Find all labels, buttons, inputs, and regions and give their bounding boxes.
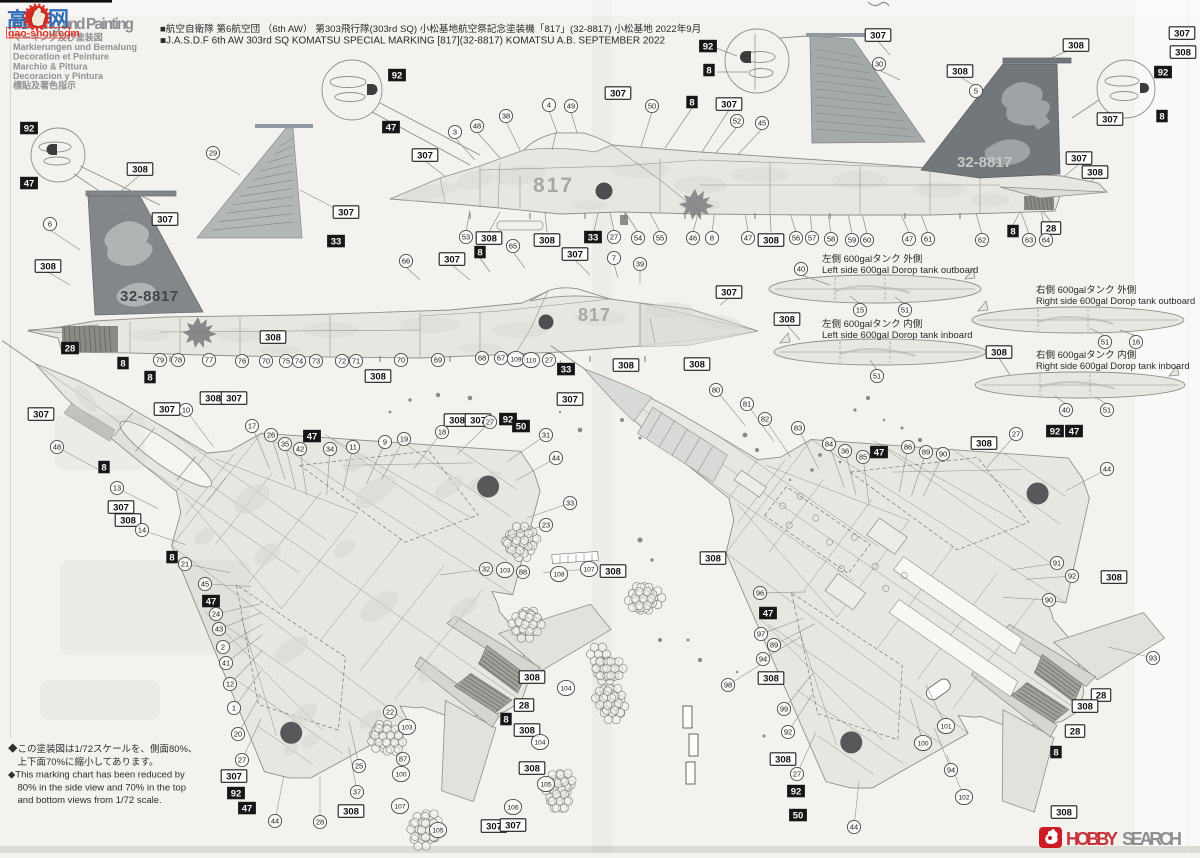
svg-text:308: 308 xyxy=(449,415,465,426)
svg-text:307: 307 xyxy=(157,214,173,225)
svg-text:92: 92 xyxy=(1158,68,1169,79)
svg-text:50: 50 xyxy=(793,811,804,822)
svg-text:307: 307 xyxy=(159,404,175,415)
svg-text:32: 32 xyxy=(482,565,490,574)
svg-text:64: 64 xyxy=(1042,236,1050,245)
svg-text:58: 58 xyxy=(827,235,835,244)
svg-text:307: 307 xyxy=(226,393,242,404)
svg-text:10: 10 xyxy=(182,406,190,415)
svg-text:308: 308 xyxy=(524,763,540,774)
svg-text:83: 83 xyxy=(794,424,802,433)
svg-text:66: 66 xyxy=(402,257,410,266)
svg-text:92: 92 xyxy=(392,71,403,82)
svg-text:47: 47 xyxy=(763,609,774,620)
svg-text:■J.A.S.D.F 6th AW 303rd SQ KOM: ■J.A.S.D.F 6th AW 303rd SQ KOMATSU SPECI… xyxy=(160,36,666,47)
svg-text:84: 84 xyxy=(825,440,833,449)
svg-text:308: 308 xyxy=(1106,572,1122,583)
svg-text:307: 307 xyxy=(486,821,502,832)
svg-text:102: 102 xyxy=(958,795,969,802)
svg-text:70: 70 xyxy=(262,357,270,366)
svg-text:52: 52 xyxy=(733,117,741,126)
svg-text:◆この塗装図は1/72スケールを、側面80%、: ◆この塗装図は1/72スケールを、側面80%、 xyxy=(8,743,198,755)
svg-text:55: 55 xyxy=(656,234,664,243)
svg-text:308: 308 xyxy=(779,314,795,325)
svg-text:8: 8 xyxy=(147,373,152,384)
svg-text:24: 24 xyxy=(212,610,220,619)
svg-text:56: 56 xyxy=(792,234,800,243)
svg-text:81: 81 xyxy=(743,400,751,409)
svg-text:Marchio & Pittura: Marchio & Pittura xyxy=(13,61,89,71)
svg-text:19: 19 xyxy=(400,435,408,444)
svg-text:44: 44 xyxy=(271,817,279,826)
svg-text:92: 92 xyxy=(784,728,792,737)
svg-text:89: 89 xyxy=(922,448,930,457)
svg-text:25: 25 xyxy=(355,762,363,771)
svg-text:42: 42 xyxy=(296,445,304,454)
svg-text:308: 308 xyxy=(763,235,779,246)
svg-text:82: 82 xyxy=(761,415,769,424)
svg-text:27: 27 xyxy=(545,356,553,365)
svg-text:308: 308 xyxy=(370,371,386,382)
svg-text:右側 600galタンク 内側: 右側 600galタンク 内側 xyxy=(1036,349,1136,361)
svg-text:308: 308 xyxy=(132,164,148,175)
svg-text:35: 35 xyxy=(281,440,289,449)
svg-text:103: 103 xyxy=(499,568,510,575)
svg-text:308: 308 xyxy=(952,66,968,77)
svg-text:67: 67 xyxy=(497,354,505,363)
svg-text:307: 307 xyxy=(721,99,737,110)
svg-text:and bottom views from 1/72 sca: and bottom views from 1/72 scale. xyxy=(8,795,162,806)
svg-text:8: 8 xyxy=(689,98,694,109)
svg-text:45: 45 xyxy=(201,580,209,589)
svg-text:44: 44 xyxy=(1103,465,1111,474)
svg-text:307: 307 xyxy=(1102,114,1118,125)
svg-text:33: 33 xyxy=(331,237,342,248)
svg-text:27: 27 xyxy=(610,233,618,242)
svg-text:59: 59 xyxy=(848,236,856,245)
svg-text:90: 90 xyxy=(1045,596,1053,605)
svg-text:104: 104 xyxy=(560,686,571,693)
svg-text:23: 23 xyxy=(542,521,550,530)
svg-text:104: 104 xyxy=(534,740,545,747)
svg-text:48: 48 xyxy=(473,122,481,131)
svg-text:SEARCH: SEARCH xyxy=(1122,829,1182,849)
svg-text:57: 57 xyxy=(808,234,816,243)
svg-text:8: 8 xyxy=(1159,112,1164,123)
svg-text:47: 47 xyxy=(744,234,752,243)
svg-text:92: 92 xyxy=(24,124,35,135)
svg-text:15: 15 xyxy=(856,306,864,315)
svg-text:72: 72 xyxy=(338,357,346,366)
svg-text:307: 307 xyxy=(113,502,129,513)
svg-text:2: 2 xyxy=(221,643,225,652)
svg-text:817: 817 xyxy=(578,305,611,325)
svg-text:28: 28 xyxy=(1046,223,1057,234)
svg-text:307: 307 xyxy=(1071,153,1087,164)
svg-text:Markierungen und Bemalung: Markierungen und Bemalung xyxy=(13,42,137,52)
svg-text:307: 307 xyxy=(505,820,521,831)
svg-text:308: 308 xyxy=(1068,40,1084,51)
svg-text:50: 50 xyxy=(516,422,527,433)
svg-text:107: 107 xyxy=(583,567,594,574)
svg-text:100: 100 xyxy=(395,772,406,779)
svg-text:78: 78 xyxy=(174,356,182,365)
svg-text:307: 307 xyxy=(417,150,433,161)
svg-text:308: 308 xyxy=(775,754,791,765)
svg-text:左側 600galタンク 外側: 左側 600galタンク 外側 xyxy=(822,253,922,265)
svg-text:28: 28 xyxy=(316,818,324,827)
svg-text:9: 9 xyxy=(383,438,387,447)
svg-text:13: 13 xyxy=(113,484,121,493)
svg-text:307: 307 xyxy=(33,409,49,420)
svg-text:308: 308 xyxy=(1175,47,1191,58)
svg-text:308: 308 xyxy=(976,438,992,449)
svg-text:307: 307 xyxy=(1174,28,1190,39)
svg-text:28: 28 xyxy=(65,344,76,355)
svg-text:50: 50 xyxy=(648,102,656,111)
svg-text:96: 96 xyxy=(756,589,764,598)
svg-text:103: 103 xyxy=(401,725,412,732)
svg-text:61: 61 xyxy=(924,235,932,244)
svg-text:48: 48 xyxy=(53,443,61,452)
svg-text:29: 29 xyxy=(209,149,217,158)
svg-text:307: 307 xyxy=(226,771,242,782)
svg-text:308: 308 xyxy=(1056,807,1072,818)
svg-text:11: 11 xyxy=(349,443,357,452)
svg-text:14: 14 xyxy=(138,526,146,535)
svg-text:106: 106 xyxy=(507,805,518,812)
svg-text:31: 31 xyxy=(542,431,550,440)
svg-text:307: 307 xyxy=(567,249,583,260)
svg-text:8: 8 xyxy=(503,715,508,726)
svg-text:110: 110 xyxy=(526,358,537,365)
svg-text:92: 92 xyxy=(231,789,242,800)
svg-text:307: 307 xyxy=(870,30,886,41)
svg-text:74: 74 xyxy=(295,357,303,366)
svg-text:47: 47 xyxy=(905,235,913,244)
svg-text:49: 49 xyxy=(567,102,575,111)
svg-text:27: 27 xyxy=(486,418,494,427)
svg-text:34: 34 xyxy=(326,445,334,454)
svg-text:307: 307 xyxy=(338,207,354,218)
svg-text:92: 92 xyxy=(1050,427,1061,438)
svg-text:17: 17 xyxy=(248,422,256,431)
svg-text:20: 20 xyxy=(234,730,242,739)
svg-text:88: 88 xyxy=(519,568,527,577)
svg-text:右側 600galタンク 外側: 右側 600galタンク 外側 xyxy=(1036,284,1136,296)
svg-text:86: 86 xyxy=(904,443,912,452)
svg-text:75: 75 xyxy=(282,357,290,366)
svg-text:Left side 600gal Dorop tank ou: Left side 600gal Dorop tank outboard xyxy=(822,265,978,276)
svg-text:47: 47 xyxy=(386,123,397,134)
svg-text:47: 47 xyxy=(242,804,253,815)
svg-text:308: 308 xyxy=(120,515,136,526)
svg-text:Right side 600gal Dorop tank i: Right side 600gal Dorop tank inboard xyxy=(1036,361,1190,371)
svg-text:30: 30 xyxy=(875,60,883,69)
svg-text:97: 97 xyxy=(757,630,765,639)
svg-text:40: 40 xyxy=(1062,406,1070,415)
svg-text:92: 92 xyxy=(1068,572,1076,581)
svg-text:◆This marking chart has been r: ◆This marking chart has been reduced by xyxy=(8,770,185,781)
svg-text:41: 41 xyxy=(222,659,230,668)
svg-text:39: 39 xyxy=(636,260,644,269)
svg-text:32-8817: 32-8817 xyxy=(120,288,179,305)
svg-text:308: 308 xyxy=(519,725,535,736)
svg-text:47: 47 xyxy=(307,432,318,443)
svg-text:47: 47 xyxy=(1069,427,1080,438)
svg-text:7: 7 xyxy=(612,254,616,263)
svg-text:308: 308 xyxy=(343,806,359,817)
svg-text:27: 27 xyxy=(1012,430,1020,439)
svg-text:51: 51 xyxy=(1103,406,1111,415)
svg-text:87: 87 xyxy=(399,755,407,764)
svg-text:47: 47 xyxy=(206,597,217,608)
svg-text:51: 51 xyxy=(901,306,909,315)
svg-text:53: 53 xyxy=(462,233,470,242)
svg-text:8: 8 xyxy=(710,234,714,243)
svg-text:308: 308 xyxy=(605,566,621,577)
svg-text:94: 94 xyxy=(759,655,767,664)
svg-text:85: 85 xyxy=(859,453,867,462)
svg-text:68: 68 xyxy=(478,354,486,363)
svg-text:51: 51 xyxy=(1101,338,1109,347)
svg-text:307: 307 xyxy=(610,88,626,99)
svg-text:80: 80 xyxy=(712,386,720,395)
svg-text:37: 37 xyxy=(353,788,361,797)
svg-text:33: 33 xyxy=(588,233,599,244)
svg-text:308: 308 xyxy=(763,673,779,684)
svg-text:54: 54 xyxy=(634,234,642,243)
svg-text:307: 307 xyxy=(444,254,460,265)
svg-text:79: 79 xyxy=(156,356,164,365)
svg-text:5: 5 xyxy=(974,87,978,96)
svg-text:92: 92 xyxy=(703,42,714,53)
svg-text:22: 22 xyxy=(386,708,394,717)
svg-text:98: 98 xyxy=(724,681,732,690)
svg-text:101: 101 xyxy=(940,724,951,731)
svg-text:94: 94 xyxy=(947,766,955,775)
svg-text:71: 71 xyxy=(352,357,360,366)
svg-text:109: 109 xyxy=(510,357,521,364)
svg-text:107: 107 xyxy=(394,804,405,811)
svg-text:308: 308 xyxy=(265,332,281,343)
svg-text:47: 47 xyxy=(874,448,885,459)
svg-text:308: 308 xyxy=(524,672,540,683)
svg-text:308: 308 xyxy=(618,360,634,371)
svg-text:40: 40 xyxy=(797,265,805,274)
svg-text:93: 93 xyxy=(1149,654,1157,663)
svg-text:18: 18 xyxy=(438,428,446,437)
svg-text:8: 8 xyxy=(706,66,711,77)
svg-text:21: 21 xyxy=(181,560,189,569)
svg-text:308: 308 xyxy=(205,393,221,404)
svg-text:307: 307 xyxy=(721,287,737,298)
svg-text:60: 60 xyxy=(863,236,871,245)
svg-text:89: 89 xyxy=(770,641,778,650)
svg-text:46: 46 xyxy=(689,234,697,243)
svg-text:47: 47 xyxy=(24,179,35,190)
svg-text:308: 308 xyxy=(481,233,497,244)
svg-text:69: 69 xyxy=(434,356,442,365)
svg-text:左側 600galタンク 内側: 左側 600galタンク 内側 xyxy=(822,318,922,330)
svg-text:38: 38 xyxy=(502,112,510,121)
svg-text:92: 92 xyxy=(503,415,514,426)
svg-text:8: 8 xyxy=(169,553,174,564)
svg-text:308: 308 xyxy=(991,347,1007,358)
svg-text:308: 308 xyxy=(705,553,721,564)
svg-text:307: 307 xyxy=(562,394,578,405)
svg-text:91: 91 xyxy=(1053,559,1061,568)
svg-text:99: 99 xyxy=(780,705,788,714)
svg-text:標貼及著色指示: 標貼及著色指示 xyxy=(13,80,76,91)
svg-text:28: 28 xyxy=(519,700,530,711)
svg-text:27: 27 xyxy=(793,770,801,779)
svg-text:Decoracion y Pintura: Decoracion y Pintura xyxy=(13,71,104,81)
svg-text:1: 1 xyxy=(232,704,236,713)
svg-text:51: 51 xyxy=(873,372,881,381)
svg-text:80% in the side view and 70% i: 80% in the side view and 70% in the top xyxy=(8,782,186,793)
svg-text:4: 4 xyxy=(547,101,551,110)
svg-text:3: 3 xyxy=(453,128,457,137)
svg-text:HOBBY: HOBBY xyxy=(1066,829,1118,849)
svg-text:100: 100 xyxy=(917,741,928,748)
svg-text:308: 308 xyxy=(1087,167,1103,178)
svg-text:90: 90 xyxy=(939,450,947,459)
svg-text:105: 105 xyxy=(432,828,443,835)
svg-text:76: 76 xyxy=(238,357,246,366)
svg-text:77: 77 xyxy=(205,356,213,365)
svg-text:92: 92 xyxy=(791,787,802,798)
svg-text:43: 43 xyxy=(215,625,223,634)
svg-text:12: 12 xyxy=(226,680,234,689)
svg-text:73: 73 xyxy=(312,357,320,366)
svg-text:8: 8 xyxy=(477,248,482,259)
svg-text:Left side 600gal Dorop tank in: Left side 600gal Dorop tank inboard xyxy=(822,330,973,341)
svg-text:36: 36 xyxy=(841,447,849,456)
svg-text:63: 63 xyxy=(1025,236,1033,245)
svg-text:308: 308 xyxy=(1077,701,1093,712)
svg-text:70: 70 xyxy=(397,356,405,365)
svg-text:8: 8 xyxy=(1010,227,1015,238)
svg-text:308: 308 xyxy=(689,359,705,370)
svg-text:26: 26 xyxy=(267,431,275,440)
svg-text:6: 6 xyxy=(48,220,52,229)
svg-text:Right side 600gal Dorop tank o: Right side 600gal Dorop tank outboard xyxy=(1036,296,1195,306)
svg-text:817: 817 xyxy=(533,174,574,197)
svg-text:32-8817: 32-8817 xyxy=(957,154,1012,171)
svg-text:108: 108 xyxy=(553,572,564,579)
svg-text:33: 33 xyxy=(566,499,574,508)
svg-text:8: 8 xyxy=(1053,748,1058,759)
svg-text:105: 105 xyxy=(540,782,551,789)
svg-text:33: 33 xyxy=(561,365,572,376)
svg-text:44: 44 xyxy=(850,823,858,832)
svg-text:308: 308 xyxy=(539,235,555,246)
svg-text:308: 308 xyxy=(40,261,56,272)
svg-text:62: 62 xyxy=(978,236,986,245)
svg-text:■航空自衛隊 第6航空団 （6th AW） 第303飛行隊(: ■航空自衛隊 第6航空団 （6th AW） 第303飛行隊(303rd SQ) … xyxy=(160,23,701,35)
svg-text:8: 8 xyxy=(120,359,125,370)
svg-text:上下面70%に縮小してあります。: 上下面70%に縮小してあります。 xyxy=(8,756,159,768)
svg-text:45: 45 xyxy=(758,119,766,128)
svg-text:8: 8 xyxy=(101,463,106,474)
svg-text:65: 65 xyxy=(509,242,517,251)
svg-text:Decoration et Peinture: Decoration et Peinture xyxy=(13,52,109,62)
svg-text:28: 28 xyxy=(1070,726,1081,737)
svg-text:27: 27 xyxy=(238,756,246,765)
svg-text:44: 44 xyxy=(552,454,560,463)
svg-text:16: 16 xyxy=(1132,338,1140,347)
